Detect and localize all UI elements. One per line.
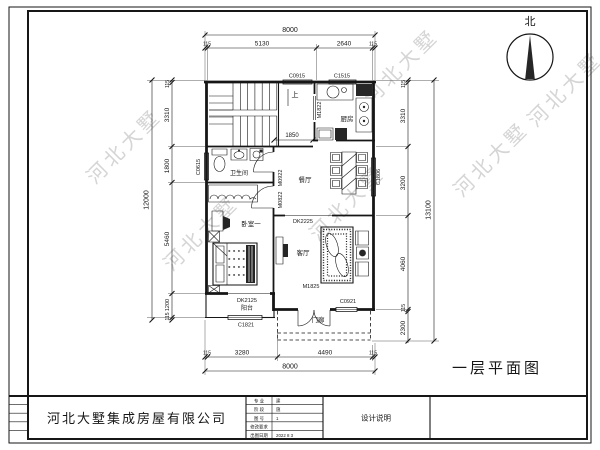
dim-seg: 1200 [165, 299, 171, 311]
door-label-kitchen: M1822 [317, 102, 323, 119]
room-label-kitchen: 厨房 [341, 114, 354, 123]
window-label-c1821: C1821 [238, 323, 254, 329]
watermark-text: 河北大墅 [82, 104, 166, 188]
room-label-bedroom1: 卧室一 [241, 219, 261, 228]
dim-seg: 2640 [337, 41, 352, 48]
room-label-dining: 餐厅 [299, 175, 313, 184]
dim-top: 8000 115 5130 2640 115 [203, 27, 378, 51]
dim-seg: 115 [401, 80, 407, 88]
window-label-c0921: C0921 [340, 299, 356, 305]
dim-right: 115 3310 3200 4060 115 2300 13100 [400, 78, 437, 344]
titleblock-row-label: 阶 段 [254, 406, 265, 413]
opening-label-dk2125: DK2125 [237, 298, 257, 304]
watermark-text: 河北大墅 [449, 117, 533, 201]
watermarks: 河北大墅 河北大墅 河北大墅 河北大墅 河北大墅 河北大墅 [82, 24, 600, 275]
door-label-bedroom: M0922 [278, 170, 284, 187]
north-label: 北 [525, 15, 536, 28]
door-label-bathroom: M0822 [278, 192, 284, 209]
titleblock-row-value: 建 [276, 398, 281, 405]
dim-seg: 115 [165, 80, 171, 88]
window-label-c1515: C1515 [334, 74, 350, 80]
dim-seg: 2300 [400, 320, 407, 335]
room-label-living: 客厅 [297, 248, 311, 257]
dim-seg: 115 [369, 42, 377, 48]
north-compass: 北 [507, 15, 553, 80]
dim-seg: 5130 [255, 41, 270, 48]
floor-plan-drawing: 河北大墅 河北大墅 河北大墅 河北大墅 河北大墅 河北大墅 河北大墅集成房屋有限… [0, 0, 600, 450]
drawing-title: 一层平面图 [452, 360, 542, 377]
drawing-sheet: 河北大墅 河北大墅 河北大墅 河北大墅 河北大墅 河北大墅 河北大墅集成房屋有限… [0, 0, 600, 450]
titleblock-row-value: 1 [276, 416, 279, 421]
titleblock-row-value: 2022 8 3 [276, 433, 294, 438]
dim-seg: 1800 [164, 158, 171, 173]
company-name: 河北大墅集成房屋有限公司 [47, 411, 227, 426]
titleblock-row-label: 图 号 [254, 416, 265, 422]
room-label-bathroom: 卫生间 [230, 169, 248, 177]
dim-seg: 115 [203, 42, 211, 48]
window-label-c1806: C1806 [376, 169, 382, 185]
titleblock-row-label: 专 业 [254, 398, 265, 405]
dim-seg: 115 [203, 351, 211, 357]
dim-seg: 3280 [235, 350, 250, 357]
dim-seg: 115 [165, 312, 171, 320]
watermark-text: 河北大墅 [523, 47, 600, 131]
inner-dimension-1850: 1850 [285, 133, 299, 139]
dim-right-overall: 13100 [426, 200, 433, 220]
dim-seg: 3310 [164, 107, 171, 122]
dim-bottom: 115 3280 4490 115 8000 [203, 350, 378, 374]
dim-seg: 115 [401, 304, 407, 312]
room-label-balcony: 阳台 [241, 304, 253, 312]
dim-seg: 4060 [400, 256, 407, 271]
dim-seg: 5460 [164, 231, 171, 246]
dim-seg: 115 [369, 351, 377, 357]
stair-up-label: 上 [292, 90, 299, 99]
north-needle-icon [525, 35, 535, 79]
window-label-c0915: C0915 [289, 74, 305, 80]
porch: 门廊 [278, 311, 371, 340]
kitchen: M1822 厨房 [317, 84, 372, 140]
titleblock-row-label: 修改要求 [250, 423, 268, 430]
dim-seg: 4490 [318, 350, 333, 357]
dim-seg: 3200 [400, 175, 407, 190]
window-label-c0615: C0615 [196, 159, 202, 175]
titleblock-row-value: 施 [276, 406, 281, 413]
title-block: 河北大墅集成房屋有限公司 专 业 建 阶 段 施 图 号 1 修改要求 出图日期… [9, 396, 587, 439]
titleblock-row-label: 出图日期 [250, 432, 268, 439]
design-note-label: 设计说明 [361, 413, 391, 423]
dim-seg: 3310 [400, 108, 407, 123]
opening-label-dk2225: DK2225 [293, 219, 313, 225]
dim-top-overall: 8000 [282, 27, 298, 34]
room-label-porch: 门廊 [312, 315, 326, 324]
sheet-frame [9, 7, 591, 443]
balcony: DK2125 阳台 C1821 [237, 298, 257, 329]
door-label-entry: M1825 [303, 284, 320, 290]
dim-bottom-overall: 8000 [282, 364, 298, 371]
dim-left-overall: 12000 [144, 190, 151, 210]
